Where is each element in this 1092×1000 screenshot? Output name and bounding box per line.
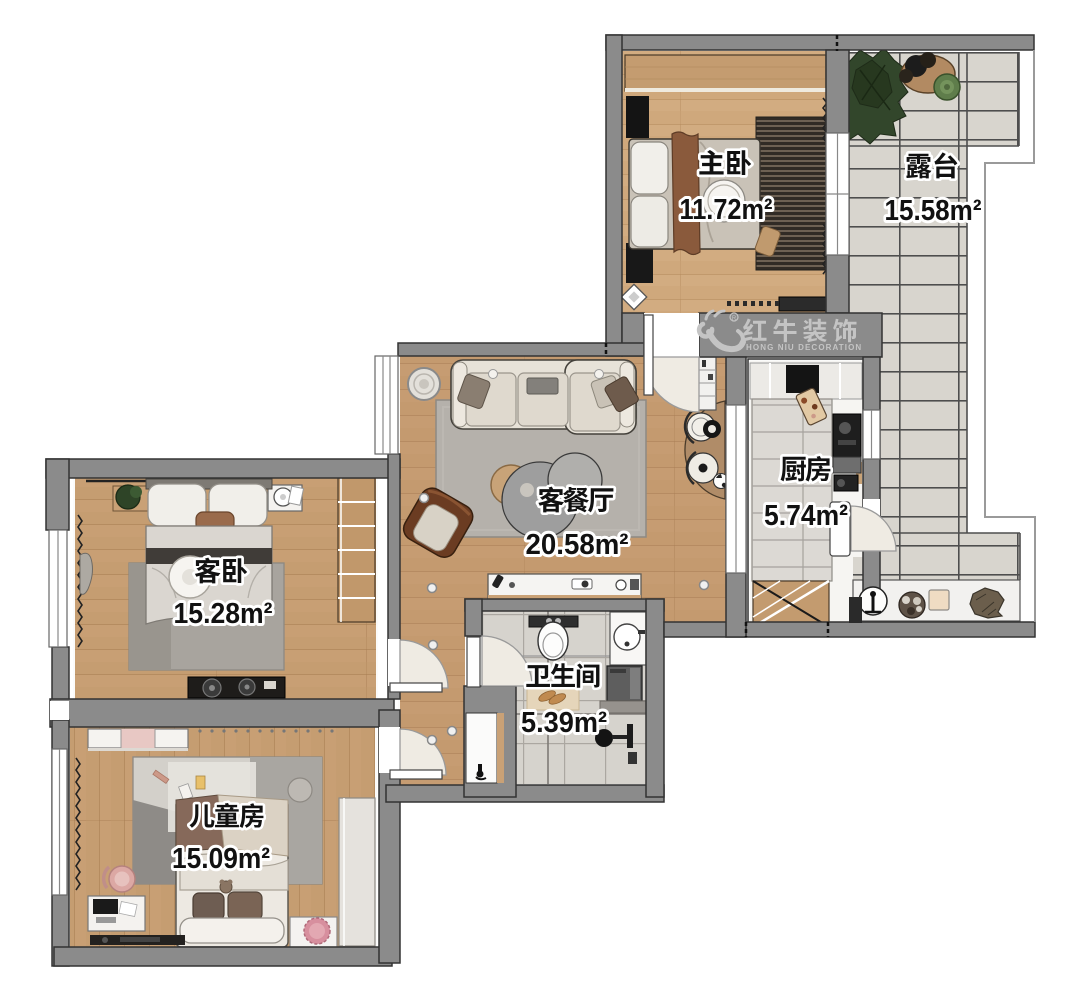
svg-text:R: R <box>732 316 737 322</box>
svg-text:20.58m²: 20.58m² <box>526 529 629 561</box>
svg-text:15.28m²: 15.28m² <box>174 598 273 630</box>
svg-text:5.39m²: 5.39m² <box>521 707 607 739</box>
svg-text:5.74m²: 5.74m² <box>764 500 848 532</box>
svg-text:15.09m²: 15.09m² <box>172 843 270 875</box>
svg-text:HONG NIU DECORATION: HONG NIU DECORATION <box>746 343 862 352</box>
svg-text:11.72m²: 11.72m² <box>680 194 773 226</box>
svg-text:15.58m²: 15.58m² <box>885 195 982 227</box>
